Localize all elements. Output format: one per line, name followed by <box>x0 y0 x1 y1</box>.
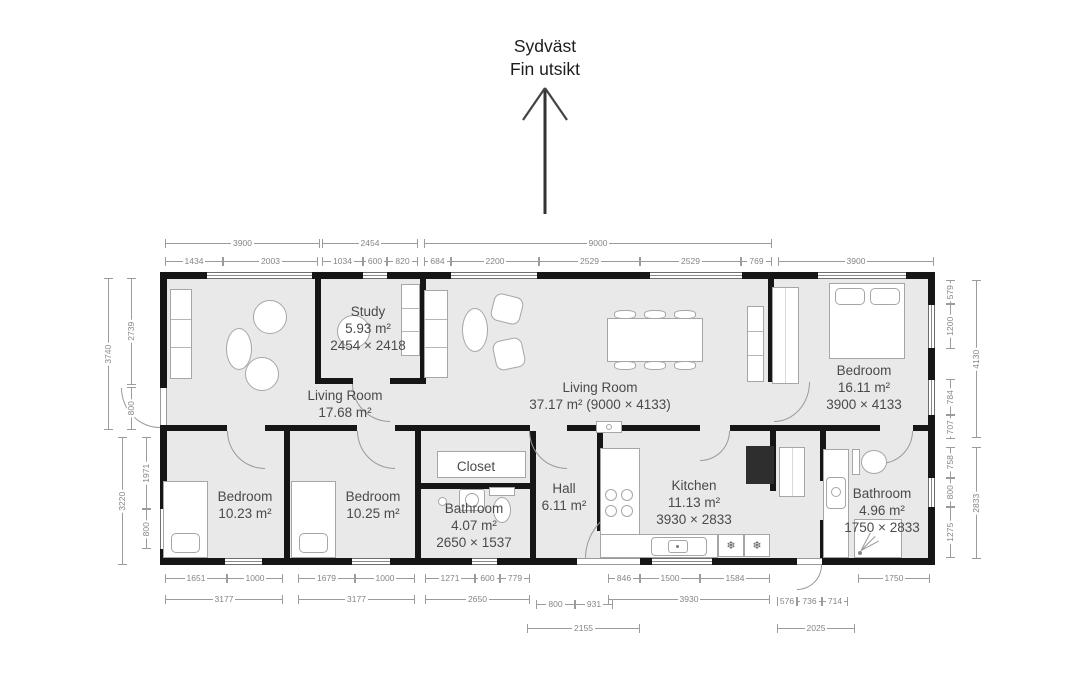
wall <box>928 348 935 380</box>
dimension-bottom: 2650 <box>425 594 530 605</box>
wall <box>742 272 818 279</box>
room-name: Bathroom <box>436 500 511 517</box>
dimension-bottom: 600 <box>475 573 500 584</box>
dimension-right: 1275 <box>945 507 956 558</box>
window <box>652 558 712 565</box>
dimension-value: 4130 <box>972 348 981 371</box>
dimension-top: 1434 <box>165 256 223 267</box>
dimension-value: 1434 <box>183 257 206 266</box>
toilet-tank <box>852 449 860 475</box>
dimension-bottom: 1500 <box>640 573 700 584</box>
window <box>207 272 312 279</box>
dimension-top: 3900 <box>165 238 320 249</box>
window <box>363 272 387 279</box>
wall <box>265 425 357 431</box>
wall <box>160 272 167 388</box>
wall <box>822 558 935 565</box>
room-label-closet: Closet <box>457 458 495 475</box>
sideboard <box>747 306 764 382</box>
dimension-value: 3220 <box>118 490 127 513</box>
dimension-top: 1034 <box>322 256 363 267</box>
wardrobe-rail <box>779 447 805 497</box>
room-name: Bedroom <box>826 362 901 379</box>
dimension-bottom: 1000 <box>355 573 415 584</box>
room-size: 3930 × 2833 <box>656 511 731 528</box>
pillow <box>299 533 328 553</box>
dimension-value: 820 <box>393 257 411 266</box>
snowflake-icon: ❄ <box>719 535 743 556</box>
stove-burner <box>605 505 617 517</box>
dimension-value: 2529 <box>679 257 702 266</box>
floor-plan-canvas: Sydväst Fin utsikt <box>0 0 1071 673</box>
dimension-top: 684 <box>424 256 451 267</box>
wall <box>262 558 352 565</box>
wall <box>315 378 353 384</box>
dimension-value: 1971 <box>142 462 151 485</box>
compass-arrow-icon <box>510 82 580 218</box>
room-name: Closet <box>457 458 495 475</box>
dimension-value: 579 <box>946 283 955 301</box>
dimension-value: 800 <box>546 600 564 609</box>
dimension-value: 2200 <box>484 257 507 266</box>
wall <box>567 425 700 431</box>
dimension-bottom: 1750 <box>858 573 930 584</box>
dimension-value: 800 <box>946 483 955 501</box>
dimension-right: 579 <box>945 280 956 304</box>
dimension-right: 758 <box>945 447 956 478</box>
fridge-icon: ❄ <box>718 534 744 557</box>
dimension-value: 3900 <box>231 239 254 248</box>
dimension-bottom: 1584 <box>700 573 770 584</box>
sink-drain <box>676 545 679 548</box>
dimension-right: 1200 <box>945 304 956 349</box>
wall <box>160 272 207 279</box>
dimension-left: 1971 <box>141 437 152 509</box>
dimension-value: 800 <box>142 520 151 538</box>
dimension-left: 2739 <box>126 278 137 385</box>
dimension-right: 707 <box>945 415 956 439</box>
wall-panel-knob <box>606 424 612 430</box>
dimension-top: 2003 <box>223 256 318 267</box>
dimension-value: 1500 <box>659 574 682 583</box>
dining-chair <box>674 361 696 370</box>
dimension-value: 1034 <box>331 257 354 266</box>
wall <box>160 425 227 431</box>
window <box>818 272 906 279</box>
room-size: 2454 × 2418 <box>330 337 405 354</box>
room-label-living-left: Living Room 17.68 m² <box>307 387 382 421</box>
wall <box>312 272 363 279</box>
dimension-value: 1750 <box>883 574 906 583</box>
dimension-value: 1200 <box>946 315 955 338</box>
dimension-top: 2529 <box>640 256 741 267</box>
sofa <box>170 289 192 379</box>
wall <box>928 272 935 305</box>
dimension-left: 3740 <box>103 278 114 430</box>
dimension-right: 784 <box>945 379 956 415</box>
dimension-value: 576 <box>778 597 796 606</box>
room-area: 10.23 m² <box>218 505 273 522</box>
dimension-bottom: 576 <box>777 596 797 607</box>
dimension-value: 846 <box>615 574 633 583</box>
room-label-bedroom-1: Bedroom 10.23 m² <box>218 488 273 522</box>
dimension-bottom: 3177 <box>165 594 283 605</box>
dimension-value: 2833 <box>972 492 981 515</box>
dimension-left: 800 <box>126 387 137 430</box>
dimension-top: 2454 <box>322 238 418 249</box>
dimension-value: 2529 <box>578 257 601 266</box>
dimension-value: 2454 <box>359 239 382 248</box>
wall <box>390 558 472 565</box>
coffee-table <box>462 308 488 352</box>
snowflake-icon: ❄ <box>745 535 769 556</box>
armchair <box>245 357 279 391</box>
dimension-value: 2155 <box>572 624 595 633</box>
dimension-top: 2200 <box>451 256 539 267</box>
dimension-value: 931 <box>585 600 603 609</box>
room-area: 4.96 m² <box>844 502 919 519</box>
room-size: 1750 × 2833 <box>844 519 919 536</box>
room-label-bathroom-right: Bathroom 4.96 m² 1750 × 2833 <box>844 485 919 536</box>
dimension-value: 736 <box>800 597 818 606</box>
stove-burner <box>605 489 617 501</box>
room-label-study: Study 5.93 m² 2454 × 2418 <box>330 303 405 354</box>
dimension-value: 2739 <box>127 320 136 343</box>
room-name: Bathroom <box>844 485 919 502</box>
wall <box>913 425 935 431</box>
dimension-bottom: 779 <box>500 573 530 584</box>
dimension-value: 1275 <box>946 521 955 544</box>
wall <box>160 558 225 565</box>
window <box>928 380 935 415</box>
pillow <box>835 288 865 305</box>
dimension-bottom: 2025 <box>777 623 855 634</box>
dimension-top: 3900 <box>778 256 934 267</box>
window <box>225 558 262 565</box>
terrace-door-opening <box>160 388 167 428</box>
dimension-bottom: 1651 <box>165 573 227 584</box>
dimension-bottom: 1271 <box>425 573 475 584</box>
wardrobe <box>772 287 799 384</box>
dimension-bottom: 1679 <box>298 573 355 584</box>
room-area: 17.68 m² <box>307 404 382 421</box>
wall <box>928 507 935 565</box>
dimension-value: 2650 <box>466 595 489 604</box>
dimension-value: 714 <box>826 597 844 606</box>
window <box>451 272 537 279</box>
tall-fridge <box>746 446 774 484</box>
room-size: 3900 × 4133 <box>826 396 901 413</box>
dimension-top: 600 <box>363 256 387 267</box>
dining-chair <box>614 361 636 370</box>
freezer-icon: ❄ <box>744 534 770 557</box>
dimension-value: 3930 <box>678 595 701 604</box>
room-label-bathroom-main: Bathroom 4.07 m² 2650 × 1537 <box>436 500 511 551</box>
room-name: Bedroom <box>346 488 401 505</box>
dimension-top: 2529 <box>539 256 640 267</box>
dimension-bottom: 2155 <box>527 623 640 634</box>
dimension-bottom: 1000 <box>227 573 283 584</box>
room-area: 10.25 m² <box>346 505 401 522</box>
dimension-bottom: 846 <box>608 573 640 584</box>
wall <box>284 431 290 558</box>
wall <box>415 431 421 558</box>
dimension-bottom: 931 <box>575 599 613 610</box>
dimension-value: 1651 <box>185 574 208 583</box>
dimension-value: 769 <box>747 257 765 266</box>
wall <box>777 425 880 431</box>
shower-drain <box>858 551 862 555</box>
utility-door-opening <box>797 558 822 565</box>
window <box>472 558 497 565</box>
dimension-bottom: 3930 <box>608 594 770 605</box>
wall <box>640 558 652 565</box>
dimension-value: 3900 <box>845 257 868 266</box>
room-area: 6.11 m² <box>542 497 587 514</box>
dimension-value: 1000 <box>244 574 267 583</box>
wall <box>315 279 321 382</box>
wall <box>497 558 577 565</box>
dimension-right: 2833 <box>971 447 982 559</box>
dimension-value: 800 <box>127 399 136 417</box>
room-name: Living Room <box>529 379 670 396</box>
wall <box>387 272 451 279</box>
room-name: Hall <box>542 480 587 497</box>
dimension-right: 4130 <box>971 280 982 438</box>
toilet-tank <box>489 487 515 496</box>
dimension-top: 769 <box>741 256 772 267</box>
dimension-top: 820 <box>387 256 418 267</box>
dimension-bottom: 714 <box>822 596 848 607</box>
room-area: 4.07 m² <box>436 517 511 534</box>
room-name: Kitchen <box>656 477 731 494</box>
room-name: Bedroom <box>218 488 273 505</box>
room-area: 16.11 m² <box>826 379 901 396</box>
dimension-value: 3740 <box>104 343 113 366</box>
dimension-left: 800 <box>141 509 152 549</box>
compass-note-label: Fin utsikt <box>510 59 580 80</box>
dimension-value: 600 <box>366 257 384 266</box>
door-arc-utility <box>797 565 822 590</box>
dimension-value: 1679 <box>315 574 338 583</box>
dimension-top: 9000 <box>424 238 772 249</box>
entrance-door-opening <box>577 558 640 565</box>
dimension-value: 779 <box>506 574 524 583</box>
dimension-left: 3220 <box>117 437 128 565</box>
sofa <box>424 290 448 378</box>
stove-burner <box>621 505 633 517</box>
compass-direction-label: Sydväst <box>514 36 576 57</box>
dimension-value: 3177 <box>345 595 368 604</box>
washbasin-bowl <box>831 487 841 497</box>
dimension-value: 784 <box>946 388 955 406</box>
dimension-value: 758 <box>946 453 955 471</box>
dimension-value: 1000 <box>374 574 397 583</box>
wall <box>712 558 797 565</box>
dimension-value: 684 <box>428 257 446 266</box>
room-name: Study <box>330 303 405 320</box>
dimension-bottom: 800 <box>536 599 575 610</box>
dimension-right: 800 <box>945 478 956 507</box>
dimension-value: 1271 <box>439 574 462 583</box>
room-label-living-main: Living Room 37.17 m² (9000 × 4133) <box>529 379 670 413</box>
dimension-bottom: 736 <box>797 596 822 607</box>
room-label-kitchen: Kitchen 11.13 m² 3930 × 2833 <box>656 477 731 528</box>
pillow <box>870 288 900 305</box>
room-name: Living Room <box>307 387 382 404</box>
dimension-value: 3177 <box>213 595 236 604</box>
dining-chair <box>644 361 666 370</box>
pillow <box>171 533 200 553</box>
stove-burner <box>621 489 633 501</box>
wall <box>537 272 650 279</box>
dimension-value: 1584 <box>724 574 747 583</box>
room-size: 2650 × 1537 <box>436 534 511 551</box>
room-label-bedroom-right: Bedroom 16.11 m² 3900 × 4133 <box>826 362 901 413</box>
room-label-bedroom-2: Bedroom 10.25 m² <box>346 488 401 522</box>
window <box>928 305 935 348</box>
room-label-hall: Hall 6.11 m² <box>542 480 587 514</box>
dimension-value: 2003 <box>259 257 282 266</box>
room-area: 11.13 m² <box>656 494 731 511</box>
window <box>352 558 390 565</box>
window <box>928 478 935 507</box>
armchair <box>253 300 287 334</box>
dimension-value: 9000 <box>587 239 610 248</box>
window <box>650 272 742 279</box>
room-area: 5.93 m² <box>330 320 405 337</box>
dimension-value: 2025 <box>805 624 828 633</box>
dining-table <box>607 318 703 362</box>
dimension-bottom: 3177 <box>298 594 415 605</box>
toilet-bowl <box>861 450 887 474</box>
dimension-value: 600 <box>478 574 496 583</box>
dimension-value: 707 <box>946 418 955 436</box>
room-area: 37.17 m² (9000 × 4133) <box>529 396 670 413</box>
